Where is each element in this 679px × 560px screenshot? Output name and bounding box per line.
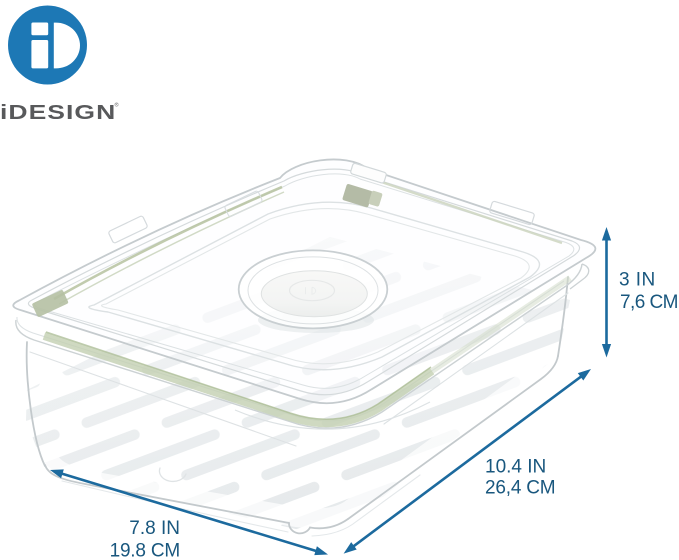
- svg-text:7,6 CM: 7,6 CM: [620, 292, 678, 313]
- svg-text:®: ®: [115, 102, 119, 109]
- svg-text:7.8 IN: 7.8 IN: [129, 518, 180, 539]
- svg-text:26,4 CM: 26,4 CM: [485, 478, 555, 499]
- svg-text:10.4 IN: 10.4 IN: [485, 457, 546, 478]
- svg-text:3 IN: 3 IN: [619, 270, 656, 291]
- svg-text:19.8 CM: 19.8 CM: [110, 540, 180, 560]
- svg-text:iDESIGN: iDESIGN: [0, 102, 116, 124]
